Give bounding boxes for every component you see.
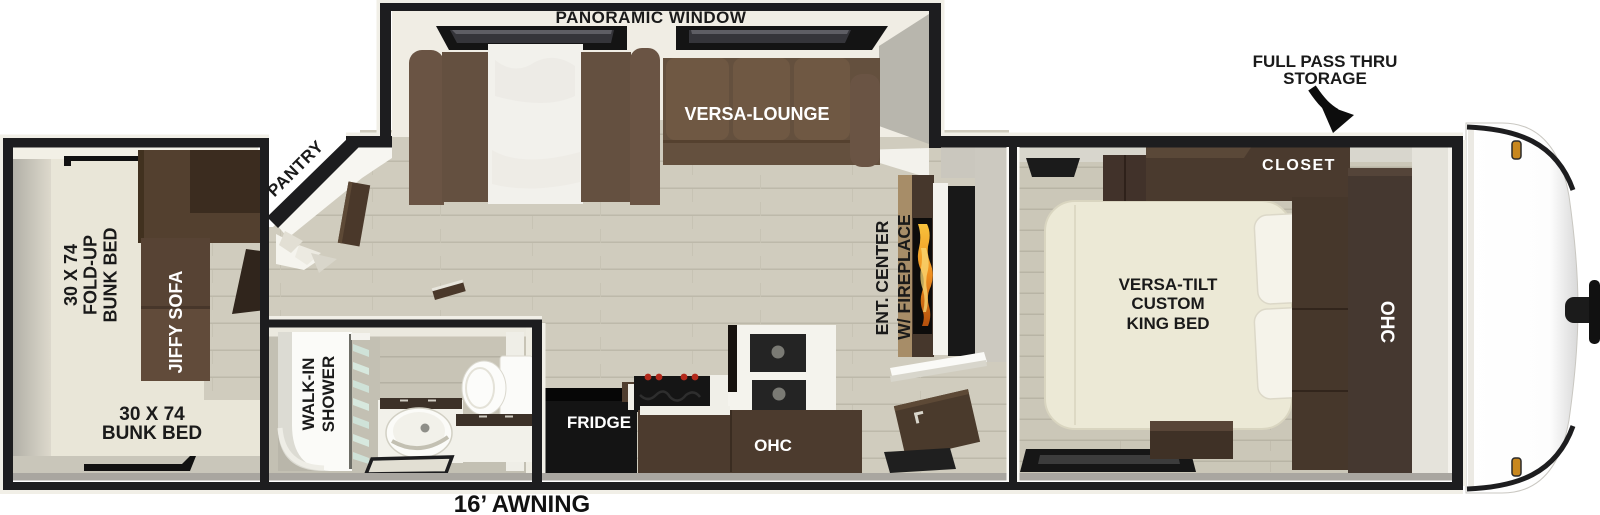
svg-text:SHOWER: SHOWER [319, 356, 338, 433]
svg-text:BUNK BED: BUNK BED [101, 227, 121, 322]
svg-text:STORAGE: STORAGE [1283, 69, 1367, 88]
svg-text:WALK-IN: WALK-IN [299, 358, 318, 431]
svg-text:OHC: OHC [1376, 301, 1397, 344]
svg-text:BUNK BED: BUNK BED [102, 423, 202, 444]
svg-text:PANORAMIC WINDOW: PANORAMIC WINDOW [556, 8, 747, 27]
svg-text:FOLD-UP: FOLD-UP [81, 235, 101, 315]
svg-text:FRIDGE: FRIDGE [567, 413, 631, 432]
svg-text:16’ AWNING: 16’ AWNING [454, 491, 590, 515]
svg-text:VERSA-LOUNGE: VERSA-LOUNGE [684, 104, 829, 124]
svg-text:W/ FIREPLACE: W/ FIREPLACE [894, 214, 914, 339]
svg-text:VERSA-TILT: VERSA-TILT [1119, 275, 1218, 294]
svg-text:ENT. CENTER: ENT. CENTER [872, 220, 892, 335]
svg-text:30 X 74: 30 X 74 [119, 404, 185, 425]
svg-text:KING BED: KING BED [1126, 314, 1209, 333]
svg-text:JIFFY SOFA: JIFFY SOFA [166, 271, 186, 374]
svg-text:OHC: OHC [754, 436, 792, 455]
svg-text:CLOSET: CLOSET [1262, 157, 1336, 174]
svg-text:30 X 74: 30 X 74 [61, 244, 81, 306]
svg-text:CUSTOM: CUSTOM [1131, 294, 1204, 313]
